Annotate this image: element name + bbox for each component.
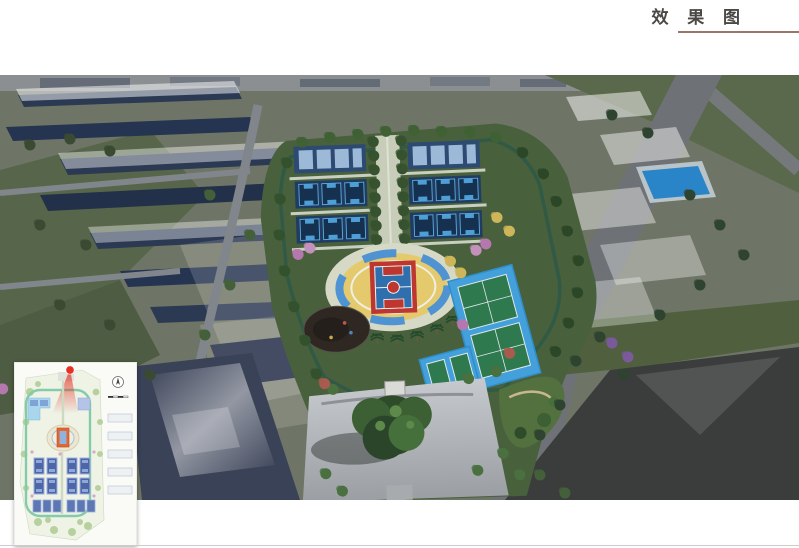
inset-central-court xyxy=(47,425,79,451)
site-plan-inset xyxy=(14,362,137,546)
inset-building-block xyxy=(78,398,90,410)
scale-bar xyxy=(108,396,128,398)
central-basketball-court xyxy=(369,260,417,314)
viewpoint-marker xyxy=(66,366,74,374)
page-title: 效 果 图 xyxy=(652,7,747,29)
entrance-plaza xyxy=(299,377,509,500)
title-underline xyxy=(678,31,799,33)
north-compass-icon xyxy=(113,377,124,388)
site-plan-canvas xyxy=(14,362,137,546)
bottom-rule xyxy=(0,545,799,546)
entrance-walk xyxy=(386,485,413,500)
swimming-pool xyxy=(642,166,710,199)
presentation-sheet: 效 果 图 xyxy=(0,0,799,548)
